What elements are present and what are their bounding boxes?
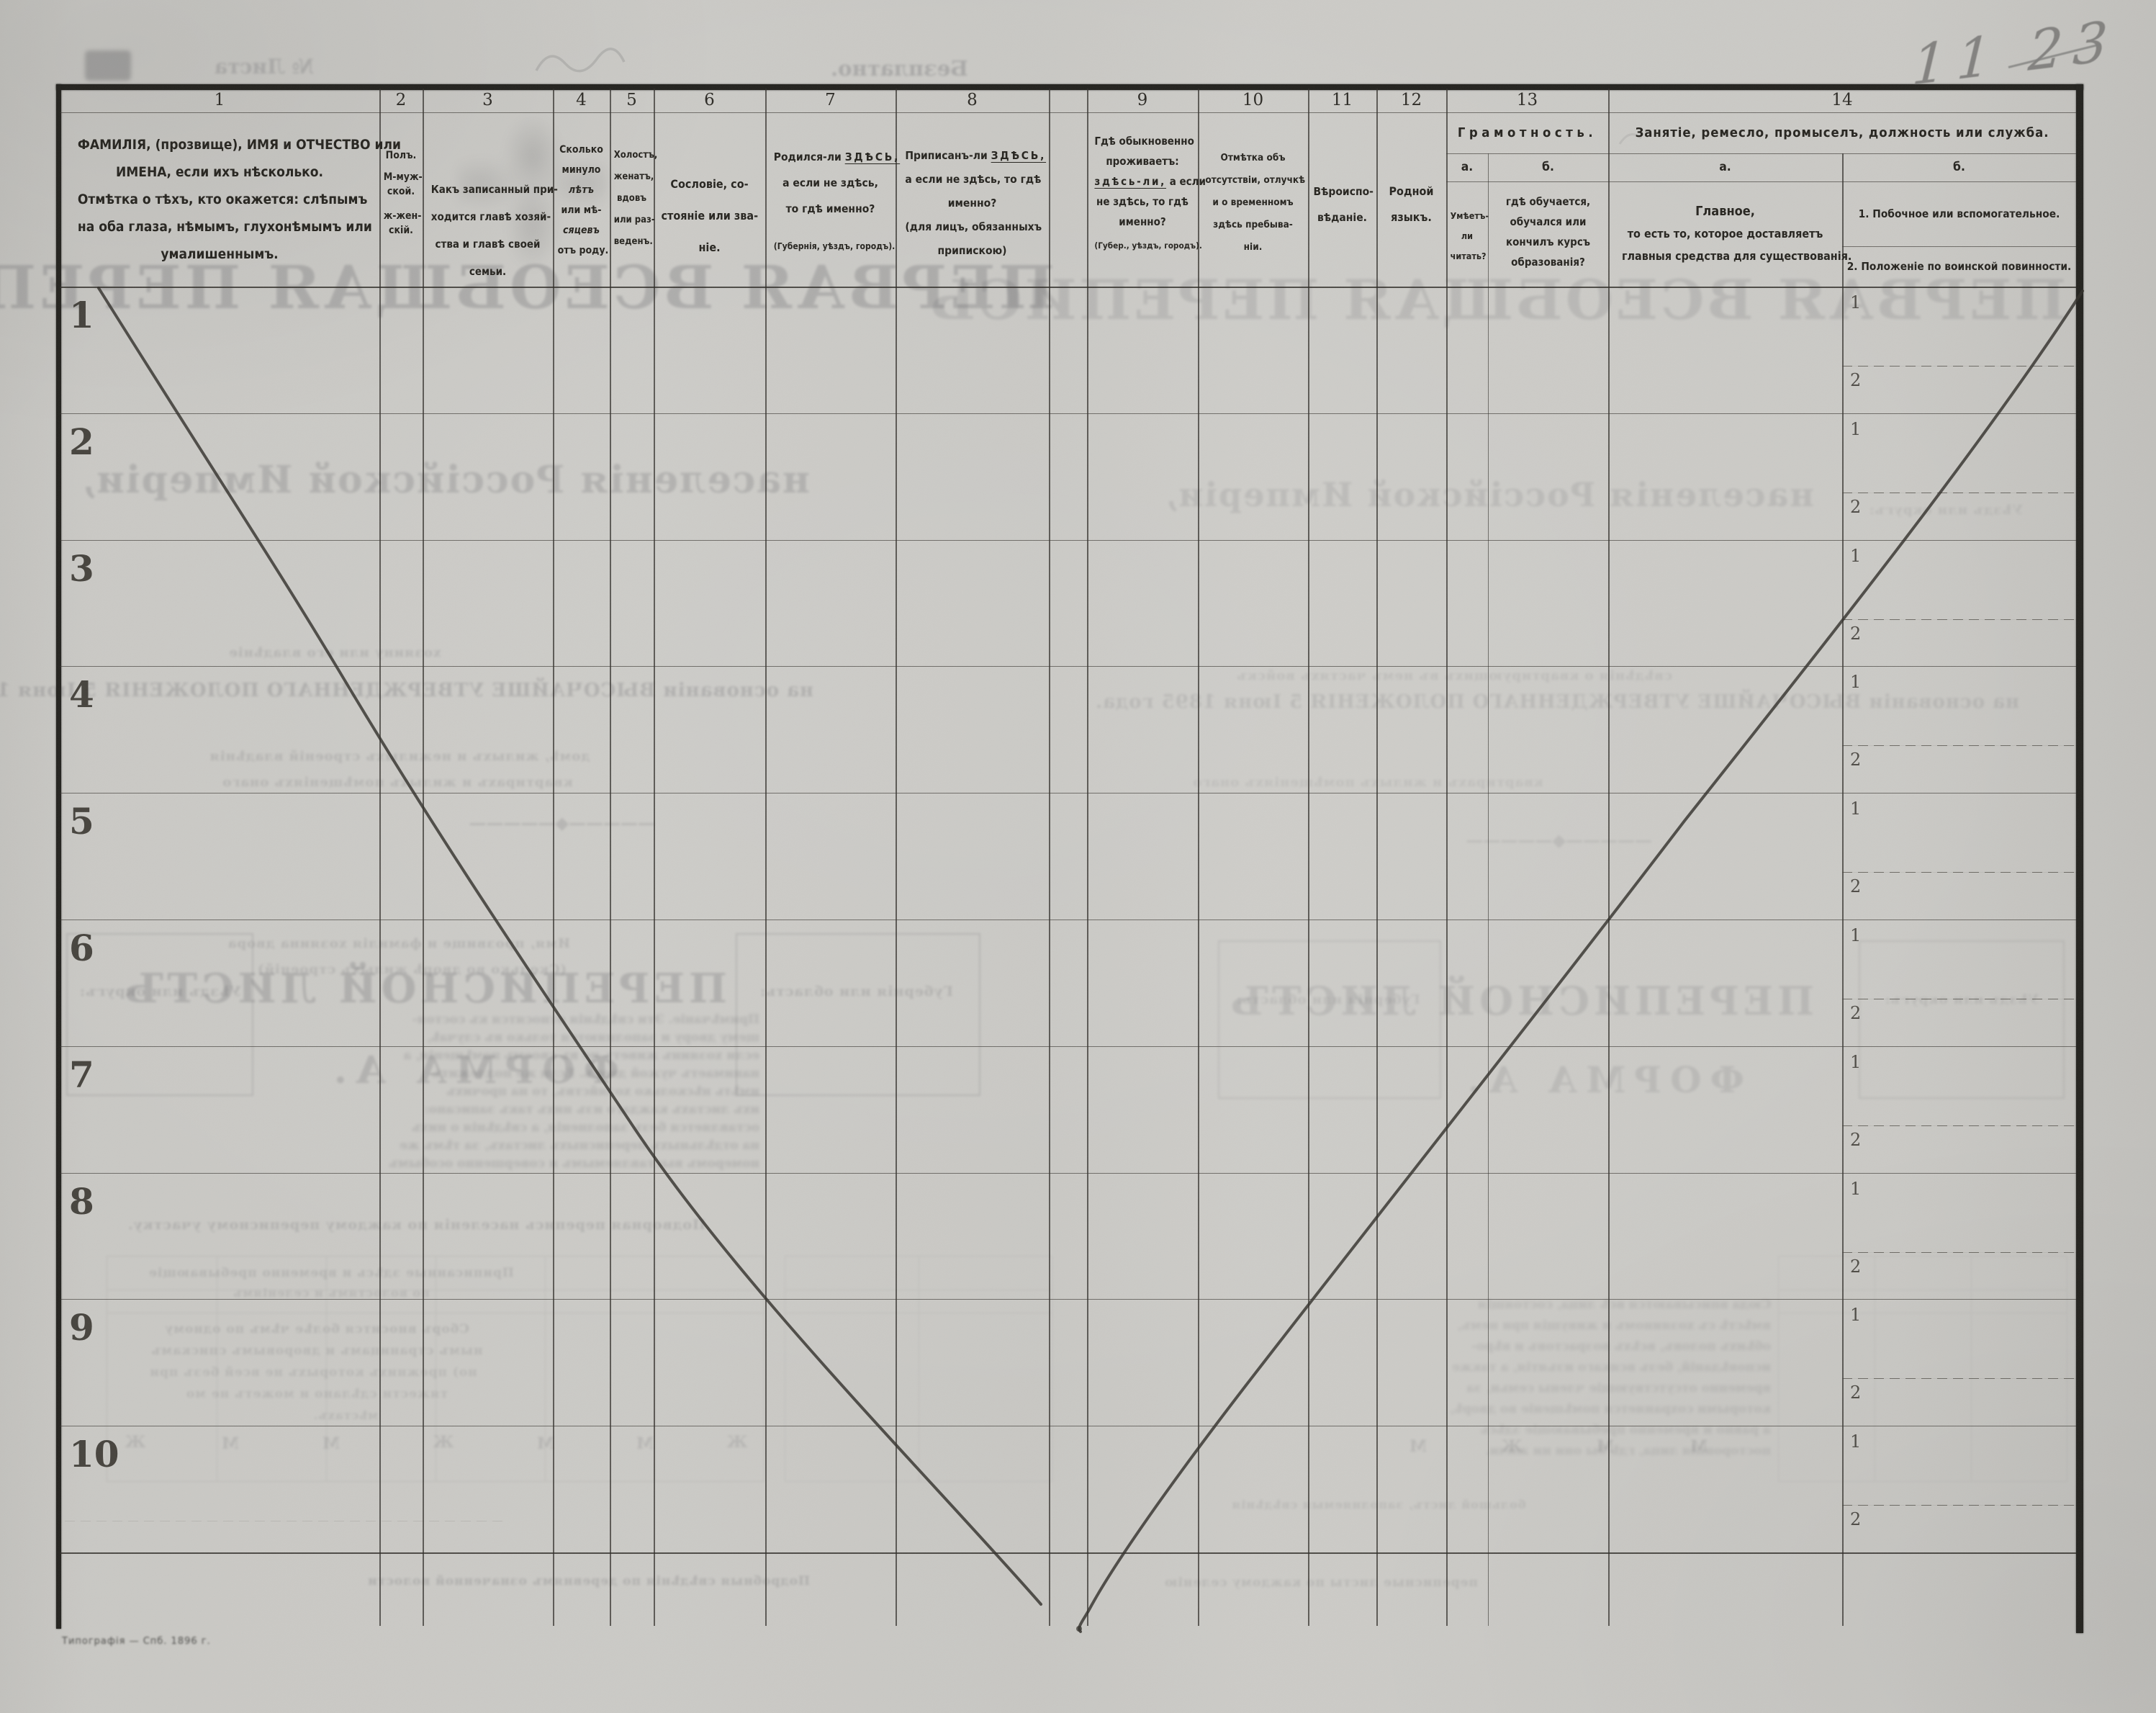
header-line: проживаетъ: [1094,151,1190,171]
sub-header-13b: гдѣ обучается,обучался иликончилъ курсъо… [1496,181,1600,297]
footer-imprint: Типографія — Спб. 1896 г. [62,1636,211,1647]
column-number-13: 13 [1446,91,1608,111]
column-header-6: Сословіе, со-стояніе или зва-ніе. [661,112,757,343]
column-divider [1376,89,1378,1626]
row-number-2: 2 [69,421,94,463]
header-line: ходится главѣ хозяй- [431,203,545,230]
bleed-grid-line [107,1313,764,1313]
bleed-paragraph-line: оставляется безъ заполненія, а свѣдѣнія … [108,1120,759,1135]
column-number-3: 3 [423,91,553,111]
row-divider [60,540,2076,541]
subrow-number: 1 [1850,1179,1861,1199]
header-line: Умѣетъ- [1451,206,1484,226]
column-number-12: 12 [1376,91,1446,111]
header-line: (для лицъ, обязанныхъ [905,215,1039,239]
bleed-grid [785,1256,1052,1482]
bleed-text: домѣ, жилыхъ и нежилыхъ строеній владѣні… [184,749,615,764]
column-header-11: Вѣроиспо-вѣданіе. [1313,112,1371,353]
bleed-text: квартирахъ и жилыхъ помѣщеніяхъ онаго [1166,775,1569,790]
subrow-number: 2 [1850,1509,1861,1529]
column-divider [610,89,611,1626]
column-number-1: 1 [60,91,379,111]
row-number-4: 4 [69,673,94,716]
column-divider [1608,89,1610,1626]
column-number-4: 4 [553,91,610,111]
column-header-8: Приписанъ-ли ЗДѢСЬ,а если не здѣсь, то г… [905,112,1039,318]
header-line: Полъ. [384,148,419,163]
subrow-divider [1842,1252,2076,1253]
header-line: здѣсь-ли, а если [1094,171,1190,192]
header-line: а если не здѣсь, [774,170,888,196]
header-line: отъ роду. [558,240,605,261]
header-line: Родной [1382,179,1441,204]
header-line: ской. [384,184,419,199]
subrow-divider [1842,619,2076,620]
bleed-paragraph-line: обѣихъ половъ, всѣхъ возрастовъ и вѣро- [1137,1339,1771,1354]
bleed-paragraph-line: ихъ листахъ каждаго изъ нихъ такъ записа… [108,1102,759,1117]
header-line: главныя средства для существованія. [1622,245,1828,267]
column-divider [896,89,897,1626]
sub-label-14a: а. [1618,153,1833,181]
header-line: М-муж- [384,170,419,184]
bleed-paragraph-line: вмѣстѣ съ хозяиномъ и живущія при немъ, [1137,1318,1771,1333]
header-line: Какъ записанный при- [431,176,545,203]
subrow-number: 1 [1850,546,1861,566]
subrow-number: 1 [1850,1052,1861,1072]
subrow-divider [1842,1505,2076,1506]
table-border-left [56,84,61,1629]
header-line: минуло [558,160,605,180]
header-line: читать? [1451,246,1484,266]
column-header-1: ФАМИЛІЯ, (прозвище), ИМЯ и ОТЧЕСТВО илиИ… [78,112,361,305]
bleed-text: на основаніи ВЫСОЧАЙШЕ УТВЕРЖДЕННАГО ПОЛ… [1119,691,2019,713]
bleed-grid-line [1779,1290,2067,1290]
column-header-9: Гдѣ обыкновеннопроживаетъ:здѣсь-ли, а ес… [1094,112,1190,305]
bleed-text: хозяину или его владѣніе [216,645,454,660]
header-line: обучался или [1496,212,1600,232]
header-line: Отмѣтка о тѣхъ, кто окажется: слѣпымъ [78,186,361,213]
column-number-11: 11 [1308,91,1376,111]
column-divider [1446,89,1448,1626]
table-border-top [56,84,2083,90]
header-line: Сословіе, со- [661,168,757,200]
bleed-text: квартирахъ и жилыхъ помѣщеніяхъ онаго [196,775,599,790]
sub-header-14a: Главное,то есть то, которое доставляетъг… [1622,181,1828,305]
row-number-3: 3 [69,547,94,590]
header-line: Родился-ли ЗДѢСЬ, [774,144,888,170]
table-border-right [2076,84,2083,1633]
header-line: на оба глаза, нѣмымъ, глухонѣмымъ или [78,213,361,240]
bleed-text: Подробныя свѣдѣнія по деревнямъ означенн… [464,1574,810,1588]
header-line: вдовъ [614,188,650,210]
header-line: Приписанъ-ли ЗДѢСЬ, [905,144,1039,168]
header-line: умалишеннымъ. [78,240,361,268]
column-number-14: 14 [1608,91,2076,111]
bleed-paragraph-line: исповѣданій, безъ всякаго изъятія, а так… [1137,1360,1771,1375]
column-number-10: 10 [1198,91,1308,111]
header-line: или мѣ- [558,200,605,220]
bleed-text: Подворная перепись населенія по каждому … [302,1217,705,1233]
table-bottom-line [60,1552,2076,1554]
header-line: лѣтъ [558,180,605,200]
header-line: ства и главѣ своей [431,230,545,258]
header-line: именно? [905,192,1039,215]
bleed-text: населенія Россійской Имперіи, [306,458,810,502]
header-line: гдѣ обучается, [1496,192,1600,212]
bleed-paragraph-line: номеромъ выставляемымъ и совершенно особ… [108,1156,759,1171]
bleed-box [66,933,253,1096]
scanned-census-sheet: № ЛистаБезплатно.ПЕРВАЯ ВСЕОБЩАЯ ПЕРЕПИС… [0,0,2156,1713]
column-header-4: Сколькоминулолѣтъили мѣ-сяцевъотъ роду. [558,112,605,314]
bleed-text: Имя, прозвище и фамилія хозяина двора [253,936,570,951]
header-line: Гдѣ обыкновенно [1094,131,1190,151]
header-line: ж-жен- [384,209,419,223]
sub-label-13a: а. [1448,153,1486,181]
header-line: то гдѣ именно? [774,196,888,222]
header-line: ИМЕНА, если ихъ нѣсколько. [78,158,361,186]
bleed-box [736,933,980,1096]
bleed-grid-line [107,1290,764,1290]
header-line: ніе. [661,232,757,264]
bleed-paragraph-line: на отдѣльныхъ переписныхъ листахъ, за тѣ… [108,1138,759,1153]
column-divider [1198,89,1199,1626]
header-line: здѣсь пребыва- [1205,214,1300,236]
column-number-2: 2 [379,91,423,111]
handwritten-page-number: 11 23 [1911,6,2128,98]
bleed-box [1859,940,2065,1099]
row-divider [60,666,2076,667]
header-gap [384,199,419,209]
subrow-divider [1842,872,2076,873]
subrow-number: 2 [1850,1003,1861,1023]
subrow-number: 1 [1850,1305,1861,1325]
header-line: припискою) [905,239,1039,263]
subrow-number: 2 [1850,876,1861,896]
bleed-rule [65,1521,504,1521]
header-line: кончилъ курсъ [1496,232,1600,252]
header-line: Главное, [1622,200,1828,222]
bleed-text: переписные листы по каждому селенію [1152,1575,1490,1590]
row-divider [60,1173,2076,1174]
row-number-10: 10 [69,1433,119,1475]
subrow-divider [1842,999,2076,999]
bleed-grid-line [1779,1313,2067,1313]
header-line: не здѣсь, то гдѣ [1094,192,1190,212]
bleed-text: большой листъ, заполняемыя свѣдѣнія [1224,1498,1533,1511]
header-line: именно? [1094,212,1190,232]
group-header-14: Занятіе, ремесло, промыселъ, должность и… [1627,112,2057,153]
header-line: сяцевъ [558,220,605,240]
bleed-text: на основаніи ВЫСОЧАЙШЕ УТВЕРЖДЕННАГО ПОЛ… [122,680,813,701]
header-line: Холостъ, [614,145,650,166]
bleed-text: (Сколько во дворѣ жилыхъ строеній) [282,962,567,977]
subrow-number: 1 [1850,292,1861,313]
bleed-text: ФОРМА А. [1496,1058,1744,1101]
bleed-text: —————◆————— [497,812,655,833]
header-line: ФАМИЛІЯ, (прозвище), ИМЯ и ОТЧЕСТВО или [78,131,361,158]
sub-header-13a: Умѣетъ-личитать? [1451,181,1484,311]
subrow-number: 2 [1850,624,1861,644]
header-line: или раз- [614,210,650,231]
column-divider [765,89,767,1626]
bleed-bezplatno: Безплатно. [829,56,970,81]
subrow-number: 1 [1850,1431,1861,1452]
column-divider [1049,89,1050,1626]
header-line: женатъ, [614,166,650,188]
column-13ab-divider [1488,153,1489,1626]
header-line: семьи. [431,258,545,285]
header-line: образованія? [1496,252,1600,272]
bleed-text: свѣдѣнія о квартирующихъ въ немъ частяхъ… [1224,668,1684,683]
header-line: скій. [384,223,419,238]
column-number-6: 6 [654,91,765,111]
bleed-paragraph-line: постороннія лица, гдѣ бы они ни жили. [1137,1444,1771,1458]
column-divider [553,89,554,1626]
column-header-7: Родился-ли ЗДѢСЬ,а если не здѣсь,то гдѣ … [774,112,888,318]
col14b-item-2: 2. Положеніе по воинской повинности. [1854,246,2065,287]
header-line: (Губернія, уѣздъ, городъ). [774,238,888,256]
subrow-number: 1 [1850,672,1861,692]
stamp-smudge [85,50,131,81]
subrow-number: 2 [1850,750,1861,770]
header-line: то есть то, которое доставляетъ [1622,222,1828,245]
header-line: языкъ. [1382,204,1441,230]
bleed-paragraph-line: а равно и временно пребывающіе здѣсь [1137,1423,1771,1437]
column-divider [654,89,655,1626]
row-divider [60,1046,2076,1047]
row-number-6: 6 [69,927,94,969]
subrow-divider [1842,1378,2076,1379]
header-line: вѣданіе. [1313,204,1371,230]
header-line: (Губер., уѣздъ, городъ). [1094,239,1190,253]
header-line: Сколько [558,140,605,160]
row-divider [60,920,2076,920]
subrow-number: 2 [1850,1130,1861,1150]
header-line: Отмѣтка объ [1205,147,1300,169]
column-divider [1308,89,1309,1626]
bleed-text: населенія Россійской Имперіи, [1371,475,1814,514]
column-number-8: 8 [896,91,1049,111]
header-line: и о временномъ [1205,192,1300,214]
row-number-5: 5 [69,800,94,842]
subrow-number: 2 [1850,1382,1861,1403]
bleed-text: Уѣздъ или округъ: [1872,503,2023,518]
subrow-divider [1842,1125,2076,1126]
header-line: Вѣроиспо- [1313,179,1371,204]
subrow-divider [1842,366,2076,367]
column-divider [423,89,424,1626]
row-divider [60,793,2076,793]
header-line: ніи. [1205,236,1300,258]
row-number-8: 8 [69,1180,94,1223]
bleed-grid [1778,1256,2067,1482]
row-number-9: 9 [69,1306,94,1349]
column-header-2: Полъ.М-муж-ской.ж-жен-скій. [384,112,419,323]
subrow-divider [1842,493,2076,493]
column-14ab-divider [1842,153,1844,1626]
row-number-7: 7 [69,1053,94,1096]
header-line: а если не здѣсь, то гдѣ [905,168,1039,192]
subrow-number: 1 [1850,419,1861,439]
subrow-number: 1 [1850,925,1861,945]
column-number-9: 9 [1087,91,1198,111]
header-line: веденъ. [614,231,650,253]
row-divider [60,413,2076,414]
sub-label-14b: б. [1851,153,2067,181]
subrow-number: 2 [1850,370,1861,390]
subrow-number: 2 [1850,1256,1861,1277]
header-gap [384,163,419,170]
row-number-1: 1 [69,294,94,336]
header-line: ли [1451,226,1484,246]
col14b-item-1: 1. Побочное или вспомогательное. [1854,181,2065,246]
bleed-box [1218,940,1441,1099]
bleed-paragraph-line: временно отсутствующіе члены семьи, за [1137,1381,1771,1395]
bleed-grid [107,1256,764,1482]
row-divider [60,1426,2076,1426]
column-number-7: 7 [765,91,896,111]
bleed-text: —————◆————— [1501,829,1652,850]
header-gap [774,222,888,238]
subrow-divider [1842,745,2076,746]
header-gap [1094,232,1190,239]
column-number-5: 5 [610,91,654,111]
bleed-list-no: № Листа [210,55,318,78]
row-divider [60,1299,2076,1300]
bleed-grid-line [785,1290,1052,1290]
subrow-number: 2 [1850,497,1861,517]
column-header-5: Холостъ,женатъ,вдовъили раз-веденъ. [614,112,650,319]
bleed-paragraph-line: которыми сохраняется помѣщеніе во дворѣ, [1137,1402,1771,1416]
header-line: стояніе или зва- [661,200,757,232]
bleed-grid-line [785,1313,1052,1313]
header-line: отсутствіи, отлучкѣ [1205,169,1300,192]
column-divider [1087,89,1088,1626]
column-header-12: Роднойязыкъ. [1382,112,1441,353]
sub-label-13b: б. [1493,153,1604,181]
column-divider [379,89,381,1626]
subrow-number: 1 [1850,799,1861,819]
column-header-3: Какъ записанный при-ходится главѣ хозяй-… [431,112,545,350]
column-header-10: Отмѣтка объотсутствіи, отлучкѣи о времен… [1205,112,1300,321]
group-header-13: Грамотность. [1453,112,1602,153]
